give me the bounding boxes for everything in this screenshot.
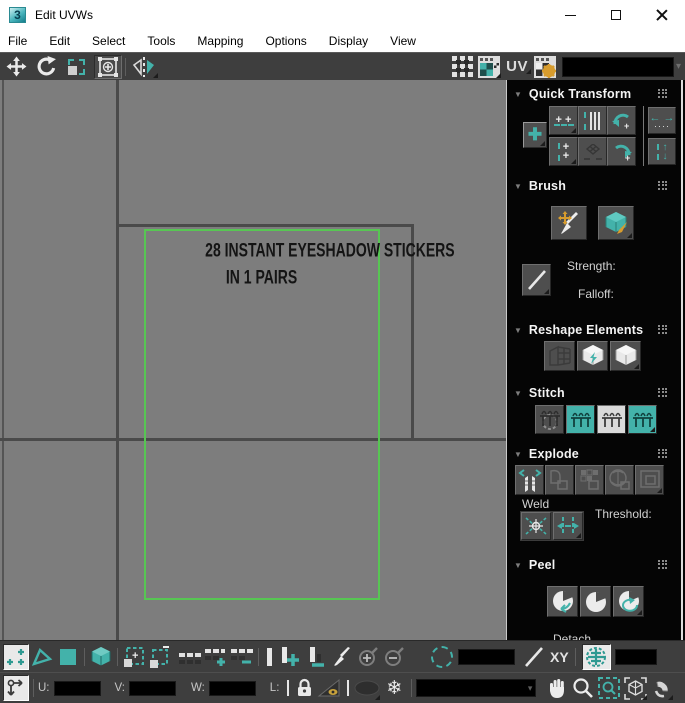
- zoom-button[interactable]: [570, 675, 596, 701]
- face-mode-icon: [60, 649, 76, 665]
- peel-mode-button[interactable]: [580, 586, 611, 617]
- lock-selection-button[interactable]: [293, 675, 315, 701]
- falloff-curve-button[interactable]: [523, 644, 545, 670]
- rotate-ccw-button[interactable]: +: [607, 106, 636, 135]
- stitch-settings-icon: [538, 408, 562, 432]
- shrink-ring-icon: [304, 646, 328, 668]
- panel-grip-icon[interactable]: [658, 325, 669, 335]
- menu-tools[interactable]: Tools: [136, 32, 186, 50]
- grid-element-icon: [548, 345, 572, 367]
- grow-ring-button[interactable]: [277, 644, 303, 670]
- menu-view[interactable]: View: [379, 32, 427, 50]
- panel-grip-icon[interactable]: [658, 89, 669, 99]
- checker-pattern-icon: [477, 55, 501, 79]
- menu-select[interactable]: Select: [81, 32, 136, 50]
- weld-all-icon: [556, 515, 580, 537]
- group-separator: [643, 106, 644, 166]
- title-bar: 3 Edit UVWs: [0, 0, 685, 30]
- distribute-horizontal-button[interactable]: ← → ····: [648, 107, 676, 134]
- lock-icon: [296, 678, 313, 698]
- uv-tile-top-border: [118, 224, 414, 227]
- v-label: V:: [115, 682, 125, 694]
- u-label: U:: [38, 682, 50, 694]
- stitch-icon: [569, 408, 593, 432]
- panel-title: Peel: [529, 558, 556, 572]
- weld-all-button[interactable]: [553, 512, 583, 540]
- panel-peel: ▼ Peel: [507, 555, 679, 640]
- window-controls: [547, 0, 685, 30]
- edge-loop-button[interactable]: [177, 644, 203, 670]
- canvas-edge-line: [2, 80, 4, 640]
- flatten-mapping-button[interactable]: [605, 465, 634, 495]
- app-icon: 3: [9, 7, 26, 23]
- w-label: W:: [191, 682, 205, 694]
- break-icon: [518, 468, 542, 492]
- shrink-brush-icon: [383, 646, 405, 668]
- freeform-mode-button[interactable]: [94, 55, 122, 79]
- paint-deform-button[interactable]: [598, 206, 634, 240]
- menu-mapping[interactable]: Mapping: [186, 32, 254, 50]
- shrink-selection-icon: [149, 646, 171, 668]
- shrink-loop-button[interactable]: [229, 644, 255, 670]
- weld-selected-icon: [524, 515, 548, 537]
- scale-button[interactable]: [63, 55, 89, 79]
- close-button[interactable]: [639, 0, 685, 30]
- flatten-custom-icon: [638, 469, 662, 491]
- falloff-type-button[interactable]: [522, 264, 551, 296]
- dropdown-arrow-icon: ▾: [528, 683, 533, 694]
- collapse-arrow-icon[interactable]: ▼: [514, 561, 522, 570]
- bars-icon: [589, 112, 601, 130]
- reshape-custom-button[interactable]: [610, 341, 641, 371]
- face-mode-button[interactable]: [55, 644, 81, 670]
- panel-quick-transform: ▼ Quick Transform ✚ + + +: [507, 84, 679, 174]
- render-template-icon: [533, 55, 557, 79]
- menu-file[interactable]: File: [0, 32, 38, 50]
- maximize-button[interactable]: [593, 0, 639, 30]
- dots-icon: ····: [654, 123, 670, 129]
- panel-title: Brush: [529, 179, 566, 193]
- rotate-icon: [36, 56, 57, 77]
- dropdown-arrow-icon[interactable]: ▾: [676, 61, 681, 72]
- flatten-by-smoothing-button[interactable]: [545, 465, 574, 495]
- panel-explode: ▼ Explode: [507, 444, 679, 554]
- soft-selection-value-input[interactable]: [458, 649, 515, 665]
- mirror-button[interactable]: [129, 55, 159, 79]
- relax-button[interactable]: [577, 341, 608, 371]
- menu-edit[interactable]: Edit: [38, 32, 81, 50]
- space-evenly-button[interactable]: [578, 137, 607, 166]
- quick-move-button[interactable]: ✚: [523, 122, 547, 148]
- toolbar-separator: [287, 680, 289, 696]
- zoom-region-icon: [598, 677, 621, 700]
- panel-title: Stitch: [529, 386, 565, 400]
- move-brush-icon: [556, 210, 582, 236]
- edge-mode-button[interactable]: [29, 644, 55, 670]
- edge-mode-icon: [31, 647, 53, 667]
- eye-filter-icon: [354, 680, 380, 696]
- move-button[interactable]: [3, 55, 29, 79]
- rotate-ccw-icon: +: [612, 111, 632, 131]
- absolute-mode-button[interactable]: [3, 675, 29, 701]
- rotate-cw-icon: +: [612, 142, 632, 162]
- stitch-average-button[interactable]: [597, 405, 626, 434]
- minimize-icon: [565, 15, 576, 16]
- weld-selected-button[interactable]: [521, 512, 551, 540]
- shrink-brush-button[interactable]: [381, 644, 407, 670]
- uv-canvas[interactable]: 28 INSTANT EYESHADOW STICKERS IN 1 PAIRS: [0, 80, 507, 640]
- peel-arrow-icon: [550, 589, 576, 615]
- zoom-extents-icon: [624, 677, 647, 700]
- freeform-icon: [97, 56, 119, 78]
- align-vertical-group: ++ +: [549, 137, 636, 166]
- panel-header[interactable]: ▼ Explode: [507, 444, 679, 464]
- falloff-space-label[interactable]: XY: [550, 649, 569, 665]
- align-horizontal-group: + + +: [549, 106, 636, 135]
- flatten-custom-button[interactable]: [635, 465, 664, 495]
- magnet-icon: [650, 677, 672, 699]
- collapse-arrow-icon[interactable]: ▼: [514, 182, 522, 191]
- grow-ring-icon: [278, 646, 302, 668]
- panel-header[interactable]: ▼ Brush: [507, 176, 679, 196]
- absolute-offset-icon: [6, 678, 26, 698]
- stitch-target-button[interactable]: [628, 405, 657, 434]
- linear-falloff-icon: [526, 268, 548, 292]
- svg-text:+: +: [132, 650, 138, 662]
- flatten-smoothing-icon: [548, 469, 572, 491]
- align-vertical-button[interactable]: ++: [549, 137, 578, 166]
- panel-stitch: ▼ Stitch: [507, 383, 679, 443]
- panel-header[interactable]: ▼ Reshape Elements: [507, 320, 679, 340]
- falloff-label: Falloff:: [578, 287, 614, 301]
- snowflake-icon: ❄: [386, 677, 402, 700]
- pan-button[interactable]: [544, 675, 570, 701]
- grow-selection-icon: +: [123, 646, 145, 668]
- panel-title: Explode: [529, 447, 579, 461]
- threshold-label: Threshold:: [595, 507, 652, 521]
- dashed-line-icon: [584, 158, 602, 160]
- menu-display[interactable]: Display: [318, 32, 379, 50]
- mirror-icon: [131, 56, 157, 78]
- element-value-input[interactable]: [615, 649, 657, 665]
- u-value-input[interactable]: [54, 681, 101, 696]
- paint-brush-icon: [331, 646, 353, 668]
- element-mode-button[interactable]: [88, 644, 114, 670]
- dashed-line-icon: [558, 143, 560, 161]
- panel-brush: ▼ Brush: [507, 176, 679, 316]
- soft-selection-button[interactable]: [429, 644, 455, 670]
- move-icon: [6, 56, 27, 77]
- cube-icon: [614, 344, 638, 368]
- uv-coordinates-button[interactable]: UV: [502, 58, 532, 75]
- plus-marks-icon: + +: [556, 116, 572, 124]
- edge-ring-icon: [267, 648, 272, 666]
- move-brush-button[interactable]: [551, 206, 587, 240]
- stitch-source-button[interactable]: [566, 405, 595, 434]
- toolbar-separator: [347, 680, 349, 696]
- toolbar-separator: [125, 58, 126, 76]
- panel-grip-icon[interactable]: [658, 449, 669, 459]
- panel-reshape-elements: ▼ Reshape Elements: [507, 320, 679, 382]
- peel-reset-button[interactable]: [613, 586, 644, 617]
- tool-panels-sidebar: ▼ Quick Transform ✚ + + +: [507, 80, 685, 640]
- edge-loop-icon: [178, 649, 202, 665]
- svg-text:+: +: [624, 121, 629, 131]
- break-button[interactable]: [515, 465, 544, 495]
- rotate-button[interactable]: [33, 55, 59, 79]
- selection-toolbar: +: [0, 640, 685, 672]
- l-label: L:: [270, 682, 280, 694]
- align-horizontal-button[interactable]: + +: [549, 106, 578, 135]
- window-title: Edit UVWs: [35, 8, 93, 22]
- quick-peel-button[interactable]: [547, 586, 578, 617]
- paint-select-button[interactable]: [329, 644, 355, 670]
- grow-loop-button[interactable]: [203, 644, 229, 670]
- uv-grid-vertical-line: [116, 80, 119, 640]
- panel-grip-icon[interactable]: [658, 560, 669, 570]
- hide-triangle-eye-icon: [317, 678, 341, 698]
- shrink-ring-button[interactable]: [303, 644, 329, 670]
- svg-text:+: +: [625, 153, 630, 162]
- render-template-button[interactable]: [532, 55, 558, 79]
- falloff-line-icon: [524, 646, 544, 668]
- relax-until-flat-button[interactable]: [544, 341, 575, 371]
- zoom-extents-button[interactable]: [622, 675, 648, 701]
- maximize-icon: [611, 10, 621, 20]
- map-channel-dropdown[interactable]: ▾: [416, 679, 536, 697]
- panel-grip-icon[interactable]: [658, 388, 669, 398]
- element-cube-icon: [90, 646, 112, 668]
- vertex-mode-icon: [6, 647, 26, 667]
- relax-brush-icon: [603, 210, 629, 236]
- dashed-line-icon: [584, 112, 586, 130]
- stitch-icon: [631, 408, 655, 432]
- panel-title: Reshape Elements: [529, 323, 643, 337]
- freeze-button[interactable]: ❄: [381, 675, 407, 701]
- coordinates-toolbar: U: V: W: L: ❄ ▾: [0, 672, 685, 703]
- stitch-icon: [600, 408, 624, 432]
- collapse-arrow-icon[interactable]: ▼: [514, 450, 522, 459]
- shrink-selection-button[interactable]: [147, 644, 173, 670]
- show-map-toggle[interactable]: [450, 55, 476, 79]
- panel-grip-icon[interactable]: [658, 181, 669, 191]
- panel-title: Quick Transform: [529, 87, 631, 101]
- hide-selected-button[interactable]: [315, 675, 343, 701]
- v-value-input[interactable]: [129, 681, 176, 696]
- grow-selection-button[interactable]: +: [121, 644, 147, 670]
- strength-label: Strength:: [567, 259, 616, 273]
- panel-header[interactable]: ▼ Peel: [507, 555, 679, 575]
- collapse-arrow-icon[interactable]: ▼: [514, 90, 522, 99]
- peel-icon: [583, 589, 609, 615]
- cube-lightning-icon: [581, 344, 605, 368]
- weld-label: Weld: [522, 497, 549, 511]
- map-selector-dropdown[interactable]: [562, 57, 674, 77]
- dashed-line-icon: [657, 144, 659, 160]
- collapse-arrow-icon[interactable]: ▼: [514, 389, 522, 398]
- menu-options[interactable]: Options: [254, 32, 317, 50]
- peel-reset-icon: [616, 589, 642, 615]
- panel-header[interactable]: ▼ Quick Transform: [507, 84, 679, 104]
- uv-selection-rectangle[interactable]: 28 INSTANT EYESHADOW STICKERS IN 1 PAIRS: [144, 229, 380, 600]
- checker-pattern-button[interactable]: [476, 55, 502, 79]
- soft-selection-icon: [431, 646, 453, 668]
- texture-text-line2: IN 1 PAIRS: [226, 262, 297, 291]
- scale-icon: [68, 59, 85, 75]
- enlarge-brush-button[interactable]: [355, 644, 381, 670]
- rotate-cw-button[interactable]: +: [607, 137, 636, 166]
- menu-bar: File Edit Select Tools Mapping Options D…: [0, 30, 685, 52]
- plus-marks-icon: ++: [563, 143, 569, 161]
- collapse-arrow-icon[interactable]: ▼: [514, 326, 522, 335]
- arrows-ud-icon: ↑↓: [663, 143, 668, 161]
- texture-text: 28 INSTANT EYESHADOW STICKERS IN 1 PAIRS: [174, 237, 350, 291]
- distribute-vertical-button[interactable]: ↑↓: [648, 138, 676, 165]
- select-element-icon: [584, 646, 608, 668]
- checker-map-icon: [452, 56, 474, 78]
- close-icon: [656, 9, 668, 21]
- panel-header[interactable]: ▼ Stitch: [507, 383, 679, 403]
- hand-icon: [547, 677, 567, 699]
- zoom-region-button[interactable]: [596, 675, 622, 701]
- edge-ring-button[interactable]: [262, 644, 277, 670]
- vertex-mode-button[interactable]: [3, 644, 29, 670]
- sidebar-scrollbar[interactable]: [681, 80, 683, 640]
- grow-loop-icon: [204, 647, 228, 667]
- diamond-grid-icon: [584, 144, 602, 158]
- filter-selected-faces-button[interactable]: [353, 675, 381, 701]
- flatten-sphere-icon: [608, 469, 632, 491]
- move-cross-icon: ✚: [528, 125, 542, 145]
- magnifier-icon: [572, 677, 594, 699]
- stitch-custom-button[interactable]: [535, 405, 564, 434]
- select-element-toggle[interactable]: [582, 644, 611, 670]
- w-value-input[interactable]: [209, 681, 256, 696]
- flatten-material-icon: [578, 469, 602, 491]
- weld-button-group: [520, 511, 584, 541]
- transform-toolbar: UV ▾: [0, 52, 685, 80]
- shrink-loop-icon: [230, 647, 254, 667]
- texture-text-line1: 28 INSTANT EYESHADOW STICKERS: [205, 235, 454, 264]
- enlarge-brush-icon: [357, 646, 379, 668]
- snap-button[interactable]: [648, 675, 674, 701]
- space-vertical-button[interactable]: [578, 106, 607, 135]
- minimize-button[interactable]: [547, 0, 593, 30]
- flatten-by-material-button[interactable]: [575, 465, 604, 495]
